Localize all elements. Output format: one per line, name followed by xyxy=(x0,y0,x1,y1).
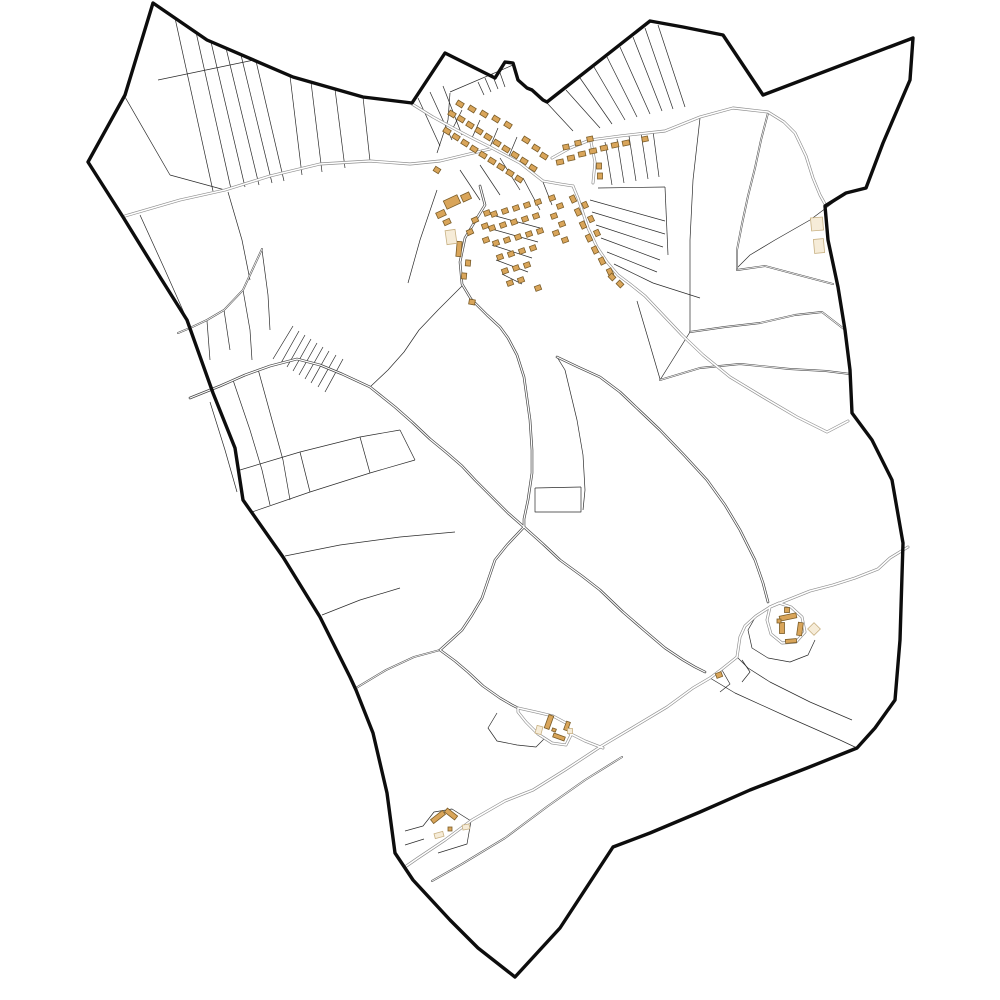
road-dark xyxy=(440,527,524,708)
farm-tracks xyxy=(178,113,850,881)
building xyxy=(600,145,608,151)
parcel-line xyxy=(547,103,573,131)
building xyxy=(597,163,602,169)
commune-boundary xyxy=(88,3,913,977)
building xyxy=(504,121,513,129)
building xyxy=(481,223,488,230)
building xyxy=(444,808,457,820)
building xyxy=(578,151,586,157)
parcel-line xyxy=(665,187,668,255)
parcel-line xyxy=(175,18,213,191)
outbuilding xyxy=(568,729,573,734)
parcel-line xyxy=(592,212,665,234)
building xyxy=(611,142,619,148)
building xyxy=(552,728,557,732)
road-light xyxy=(405,547,908,867)
building xyxy=(443,195,460,209)
parcel-line xyxy=(322,588,400,615)
building xyxy=(532,144,541,152)
building xyxy=(515,175,524,183)
building xyxy=(506,169,515,177)
parcel-line xyxy=(290,76,302,175)
parcel-line xyxy=(360,437,370,473)
building xyxy=(523,202,530,209)
parcel-line xyxy=(233,380,270,505)
outbuilding xyxy=(445,229,457,244)
parcel-line xyxy=(170,175,225,190)
parcel-line xyxy=(258,369,290,500)
parcel-line xyxy=(629,136,636,181)
track xyxy=(737,266,833,284)
track xyxy=(178,249,262,333)
building xyxy=(460,192,471,202)
building xyxy=(622,140,630,146)
parcel-line xyxy=(243,290,252,360)
road-light xyxy=(125,149,490,216)
building xyxy=(529,245,536,252)
building xyxy=(550,213,557,220)
building xyxy=(525,231,532,238)
building xyxy=(514,234,521,241)
building xyxy=(457,115,466,123)
parcel-line xyxy=(252,460,415,512)
building xyxy=(436,209,447,218)
building xyxy=(536,228,543,235)
track xyxy=(737,113,768,268)
road-dark xyxy=(190,359,524,527)
parcel-line xyxy=(450,65,513,92)
building xyxy=(534,199,541,206)
building xyxy=(510,219,517,226)
building xyxy=(558,221,565,228)
parcel-line xyxy=(496,260,528,272)
parcel-line xyxy=(737,657,852,720)
building xyxy=(589,148,597,154)
parcel-line xyxy=(405,839,424,845)
parcel-line xyxy=(633,37,662,111)
parcel-line xyxy=(690,118,700,332)
parcel-line xyxy=(418,98,440,146)
building xyxy=(468,105,477,113)
building xyxy=(482,237,489,244)
building xyxy=(503,237,510,244)
parcel-line xyxy=(285,532,455,556)
building xyxy=(780,623,785,634)
road-dark xyxy=(190,359,524,527)
road-dark xyxy=(557,357,768,602)
outbuilding xyxy=(535,725,543,734)
building xyxy=(501,208,508,215)
roads-dark xyxy=(190,186,768,708)
building xyxy=(443,218,451,225)
parcel-line xyxy=(241,55,272,183)
parcel-line xyxy=(300,452,310,492)
parcel-line xyxy=(256,61,284,181)
parcel-line xyxy=(224,310,230,350)
building xyxy=(532,213,539,220)
building xyxy=(496,254,503,261)
building xyxy=(587,136,594,142)
parcel-line xyxy=(363,97,370,161)
parcel-line xyxy=(370,285,463,387)
outbuilding xyxy=(813,239,824,254)
parcel-line xyxy=(226,48,259,185)
building xyxy=(512,205,519,212)
building xyxy=(480,110,489,118)
parcel-lines xyxy=(125,18,857,853)
outbuilding xyxy=(810,217,823,231)
building xyxy=(556,203,563,210)
parcel-line xyxy=(125,97,170,175)
building xyxy=(593,229,600,237)
building xyxy=(567,155,575,161)
building xyxy=(507,251,514,258)
building xyxy=(443,127,452,135)
building xyxy=(534,285,541,292)
parcel-line xyxy=(485,78,491,92)
building xyxy=(575,140,582,146)
building xyxy=(461,139,470,147)
road-light xyxy=(573,186,848,432)
road-dark xyxy=(440,527,524,708)
road-light xyxy=(412,104,573,186)
building xyxy=(452,133,461,141)
building xyxy=(518,248,525,255)
building xyxy=(461,273,467,279)
cadastral-map xyxy=(0,0,1000,1000)
parcel-line xyxy=(140,215,185,315)
parcel-line xyxy=(293,339,311,371)
outbuilding xyxy=(434,831,444,838)
building xyxy=(598,173,603,179)
building xyxy=(556,159,564,165)
building xyxy=(433,166,441,173)
parcel-line xyxy=(601,238,660,260)
parcel-line xyxy=(325,359,343,392)
road-light xyxy=(573,186,848,432)
building xyxy=(785,608,790,613)
parcel-line xyxy=(273,326,293,359)
building xyxy=(552,230,559,237)
building xyxy=(587,215,594,223)
parcel-line xyxy=(535,488,558,512)
track xyxy=(356,650,440,688)
building xyxy=(563,144,570,150)
track xyxy=(178,249,262,333)
building xyxy=(544,715,553,730)
building xyxy=(521,216,528,223)
parcel-line xyxy=(196,32,231,189)
parcel-line xyxy=(400,430,415,460)
building xyxy=(553,733,566,741)
parcel-line xyxy=(580,78,612,124)
parcel-line xyxy=(311,82,322,172)
building xyxy=(488,157,497,165)
building xyxy=(616,280,624,288)
parcel-line xyxy=(335,89,345,168)
parcel-line xyxy=(535,487,581,488)
building xyxy=(493,139,502,147)
building xyxy=(501,268,508,275)
track xyxy=(660,364,850,380)
track xyxy=(737,113,768,268)
road-dark xyxy=(524,527,705,672)
building xyxy=(492,115,501,123)
road-dark xyxy=(557,357,768,602)
building xyxy=(512,265,519,272)
building xyxy=(484,133,493,141)
building xyxy=(506,280,513,287)
building xyxy=(548,195,555,202)
parcel-line xyxy=(598,187,665,188)
parcel-line xyxy=(658,25,685,107)
building xyxy=(517,277,524,284)
commune-boundary-outline xyxy=(88,3,913,977)
parcel-line xyxy=(594,67,625,120)
parcel-line xyxy=(408,190,437,283)
parcel-line xyxy=(211,42,245,187)
building xyxy=(642,136,649,142)
parcel-line xyxy=(566,90,600,128)
building xyxy=(502,145,511,153)
building xyxy=(456,100,465,108)
parcel-line xyxy=(240,430,400,470)
building xyxy=(777,619,781,623)
parcel-line xyxy=(596,225,663,247)
building xyxy=(522,136,531,144)
road-light xyxy=(405,547,908,867)
building xyxy=(499,222,506,229)
building xyxy=(523,262,530,269)
parcel-line xyxy=(590,200,665,221)
parcel-line xyxy=(262,250,270,330)
building xyxy=(469,299,476,305)
building xyxy=(466,121,475,129)
parcel-line xyxy=(480,165,500,195)
parcel-line xyxy=(558,487,581,512)
building xyxy=(465,260,471,266)
building xyxy=(561,237,568,244)
building xyxy=(488,225,495,232)
building xyxy=(448,827,452,831)
parcel-line xyxy=(620,47,650,114)
building xyxy=(492,240,499,247)
parcel-line xyxy=(478,82,484,95)
road-light xyxy=(412,104,573,186)
road-dark xyxy=(524,527,705,672)
building xyxy=(431,810,446,823)
road-light xyxy=(125,149,490,216)
parcel-line xyxy=(228,192,250,280)
cadastral-map-page xyxy=(0,0,1000,1000)
track xyxy=(432,757,622,881)
building xyxy=(779,613,797,621)
outbuilding xyxy=(808,623,821,636)
building xyxy=(785,639,796,644)
outbuilding xyxy=(462,824,470,830)
building xyxy=(483,210,490,217)
parcel-line xyxy=(653,131,659,177)
parcel-line xyxy=(637,301,660,379)
track xyxy=(356,650,440,688)
parcel-line xyxy=(645,28,673,109)
building xyxy=(540,152,549,160)
parcel-line xyxy=(653,283,700,298)
parcel-line xyxy=(607,57,637,117)
parcel-line xyxy=(207,321,210,360)
